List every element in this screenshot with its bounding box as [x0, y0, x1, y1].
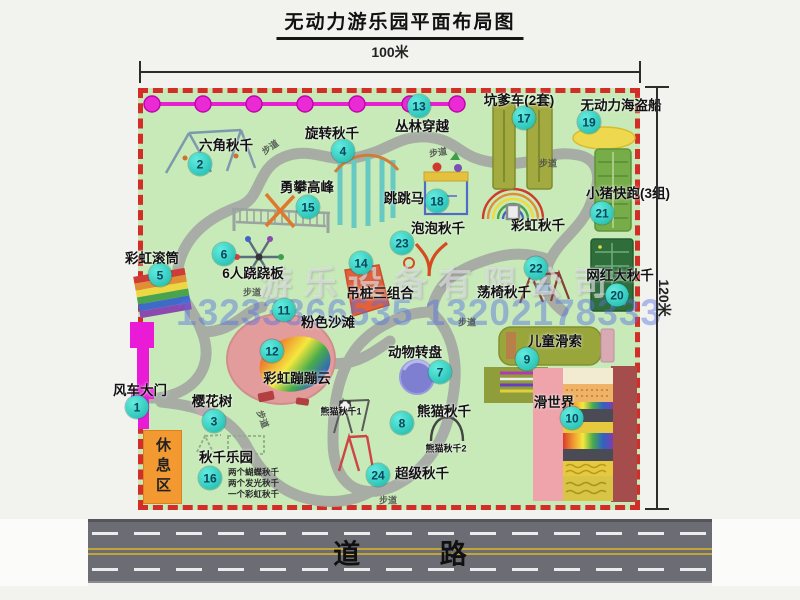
top-dimension-tick-left — [139, 61, 141, 83]
road-label: 道 路 — [297, 532, 503, 571]
rest-area-label: 休息区 — [152, 437, 173, 497]
right-dimension-label: 120米 — [654, 279, 674, 316]
right-dimension-tick-top — [645, 86, 669, 88]
watermark-phone: 13233866535 13202178333 — [176, 292, 662, 334]
top-dimension-tick-right — [639, 61, 641, 83]
road-margin-left — [0, 519, 88, 586]
top-dimension-line — [140, 71, 640, 73]
park-layout-diagram: 无动力游乐园平面布局图 100米 120米 — [0, 0, 800, 600]
top-dimension-label: 100米 — [371, 42, 408, 62]
road: 道 路 — [88, 519, 712, 583]
road-margin-right — [712, 519, 800, 586]
right-dimension-tick-bottom — [645, 508, 669, 510]
rest-area: 休息区 — [143, 430, 182, 504]
page-title: 无动力游乐园平面布局图 — [276, 7, 523, 40]
